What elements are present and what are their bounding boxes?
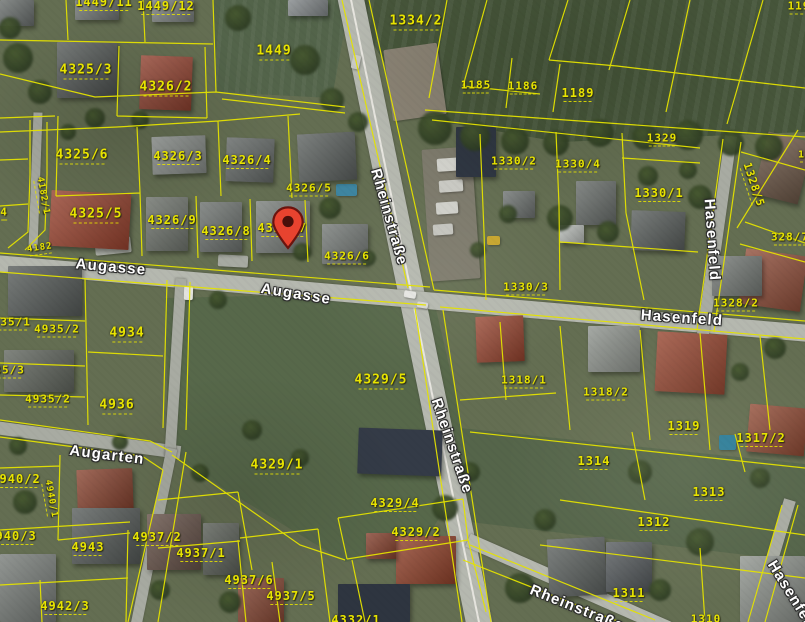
tree [131,111,149,129]
building [630,210,685,252]
parcel-label: 4937/2 [132,530,181,546]
parcel-label: 4942/3 [40,599,89,615]
building [357,428,443,477]
map-object [436,201,459,215]
building [654,331,727,395]
tree [755,133,783,161]
parcel-label: 4935/2 [34,323,80,338]
parcel-label: 4326/4 [222,153,271,169]
parcel-label: 4325/3 [60,63,113,80]
tree [0,17,21,39]
parcel-label: 1329 [647,132,678,147]
parcel-label: 1318/2 [583,386,629,401]
tree [9,437,27,455]
tree [3,43,33,73]
location-marker-icon[interactable] [271,206,305,255]
parcel-label: 1330/2 [491,155,537,170]
tree [586,119,614,147]
parcel-label: 1449 [256,44,291,61]
tree [638,166,658,186]
tree [649,579,671,601]
tree [85,108,105,128]
parcel-label: 4936 [99,398,134,415]
tree [219,591,241,613]
parcel-label: 119 [788,0,805,15]
parcel-label: 4935/2 [25,393,71,408]
building [606,542,652,592]
parcel-label: 4332/1 [331,613,380,622]
parcel-label: 1330/4 [555,158,601,173]
parcel-label: 4326/2 [140,80,193,97]
building [475,315,525,363]
parcel-label: 4329/1 [251,458,304,475]
parcel-label: 1314 [578,454,611,470]
building [288,0,328,16]
map-object [439,179,464,193]
tree [686,528,714,556]
parcel-label: 1330/3 [503,281,549,296]
parcel-label: 1186 [508,80,539,95]
parcel-label: 1311 [613,586,646,602]
building [547,537,608,598]
tree [597,221,619,243]
tree [28,80,52,104]
parcel-label: 4326/8 [201,224,250,240]
parcel-label: 1449/11 [75,0,133,11]
aerial-map-canvas[interactable]: 1449/111449/121334/214491185118611891194… [0,0,805,622]
parcel-label: 4182 [26,241,53,256]
parcel-label: 1185 [461,79,492,94]
building [76,468,133,512]
parcel-label: 4935/1 [0,316,31,331]
parcel-label: 1318/1 [501,374,547,389]
tree [150,580,170,600]
parcel-label: 4329/2 [391,525,440,541]
parcel-label: 4325/5 [70,207,123,224]
map-object [719,435,736,450]
building [396,536,456,584]
parcel-label: 1330/1 [634,186,683,202]
parcel-label: 1334/2 [390,14,443,31]
map-object [487,236,500,245]
parcel-label: 4937/6 [224,573,273,589]
parcel-label: 4937/1 [176,546,225,562]
parcel-label: 4940/3 [0,529,37,545]
tree [534,509,556,531]
tree [320,88,344,112]
parcel-label: 4940/2 [0,472,41,488]
tree [319,197,341,219]
map-object [336,184,357,196]
parcel-label: 1328 [798,150,805,163]
tree [718,130,744,156]
parcel-label: 4326/5 [286,182,332,197]
tree [242,420,262,440]
parcel-label: 4329/5 [355,373,408,390]
tree [679,161,697,179]
parcel-label: 4934 [109,326,144,343]
tree [543,130,569,156]
parcel-label: 328/7 [771,231,805,246]
parcel-label: 1328/2 [713,297,759,312]
tree [628,460,652,484]
parcel-label: 1317/2 [736,431,785,447]
tree [418,111,452,145]
parcel-label: 1319 [668,419,701,435]
tree [60,124,76,140]
building [8,266,82,316]
building [576,181,616,225]
tree [348,112,368,132]
tree [547,205,573,231]
parcel-label: 4943 [72,540,105,556]
building [297,132,357,183]
map-object [218,254,249,268]
tree [764,337,786,359]
parcel-label: 4325/6 [56,148,109,165]
parcel-label: 4326/3 [153,149,202,165]
tree [499,205,517,223]
tree [209,291,227,309]
parcel-label: 1313 [693,485,726,501]
parcel-label: 4329/4 [370,496,419,512]
building [746,404,805,457]
tree [290,45,320,75]
parcel-label: 4935/3 [0,364,25,379]
tree [501,127,529,155]
tree [191,464,209,482]
parcel-label: 4 [0,206,8,221]
tree [460,121,490,151]
parcel-label: 4326/9 [147,213,196,229]
map-object [383,43,446,122]
parcel-label: 1310 [691,613,722,622]
tree [731,363,749,381]
tree [750,468,770,488]
parcel-label: 4940/1 [41,479,60,519]
parcel-label: 1312 [638,515,671,531]
parcel-label: 4326/6 [324,250,370,265]
tree [13,490,37,514]
tree [432,495,458,521]
map-object [433,223,454,235]
tree [225,5,251,31]
tree [470,242,486,258]
building [588,326,640,372]
map-object [184,286,193,300]
parcel-label: 1189 [562,86,595,102]
parcel-label: 4937/5 [266,589,315,605]
parcel-label: 1449/12 [137,0,195,15]
